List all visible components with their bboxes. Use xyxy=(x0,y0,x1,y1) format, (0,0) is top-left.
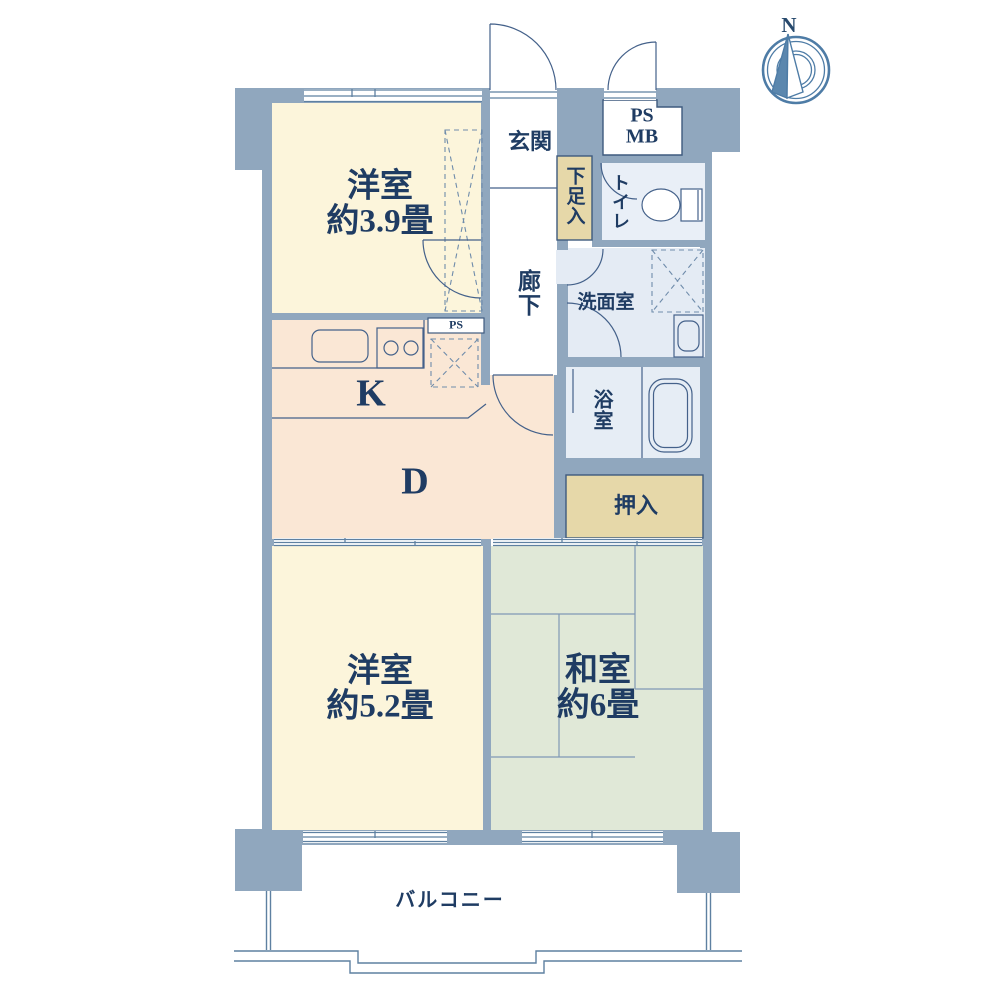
room-label-dining: D xyxy=(401,462,428,503)
balcony-rail-left xyxy=(267,891,271,950)
wall-toilet-left xyxy=(592,152,602,247)
pillar-top-left-leg xyxy=(235,88,262,170)
compass-needle-right xyxy=(787,34,803,98)
mb-line: MB xyxy=(626,127,658,148)
room-label-shoe-cabinet: 下足入 xyxy=(565,166,584,226)
entrance-opening xyxy=(490,88,557,103)
room-name: 洋室 xyxy=(326,655,433,690)
wall-toilet-washroom xyxy=(592,240,712,247)
room-bathroom xyxy=(566,367,700,458)
room-label-bathroom: 浴室 xyxy=(591,389,611,431)
room-name: 和室 xyxy=(557,654,640,689)
ps-line: PS xyxy=(626,106,658,127)
room-size: 約6畳 xyxy=(557,689,640,724)
wall-bath-bottom xyxy=(554,458,712,475)
compass xyxy=(763,34,829,103)
label-ps-small: PS xyxy=(449,319,463,332)
room-label-kitchen: K xyxy=(356,374,386,415)
compass-north-label: N xyxy=(781,14,796,36)
room-size: 約5.2畳 xyxy=(326,690,433,725)
room-label-balcony: バルコニー xyxy=(395,890,505,911)
washroom-door-opening xyxy=(556,250,568,284)
floor-plan: 洋室 約3.9畳 玄関 PS MB 下足入 トイレ 廊下 洗面室 K D PS … xyxy=(0,0,1000,1000)
room-dining-east xyxy=(481,375,554,539)
wall-corridor-nib xyxy=(481,375,490,385)
room-size: 約3.9畳 xyxy=(326,205,433,240)
room-label-hallway: 廊下 xyxy=(516,269,539,317)
room-label-entrance: 玄関 xyxy=(508,130,552,154)
floor-plan-drawing xyxy=(0,0,1000,1000)
room-label-closet: 押入 xyxy=(614,494,658,518)
pillar-bottom-right xyxy=(677,832,740,893)
wall-corridor-left xyxy=(481,103,490,385)
balcony-rail-right xyxy=(707,893,711,950)
toilet-bowl xyxy=(642,189,680,221)
entrance-door xyxy=(490,24,556,90)
wall-bottom-rooms-divider xyxy=(483,546,491,830)
room-label-western-upper: 洋室 約3.9畳 xyxy=(326,170,433,241)
toilet-tank xyxy=(681,189,702,221)
wall-dining-right xyxy=(554,367,566,539)
room-label-japanese: 和室 約6畳 xyxy=(557,654,640,725)
room-label-toilet: トイレ xyxy=(611,174,629,231)
room-name: 洋室 xyxy=(326,170,433,205)
wall-left xyxy=(262,150,272,845)
pillar-bottom-left xyxy=(235,829,302,891)
ps-door xyxy=(608,42,656,90)
room-label-western-lower: 洋室 約5.2畳 xyxy=(326,655,433,726)
wall-bath-top xyxy=(554,357,712,367)
room-label-ps-mb: PS MB xyxy=(626,106,658,149)
room-label-washroom: 洗面室 xyxy=(577,293,634,313)
